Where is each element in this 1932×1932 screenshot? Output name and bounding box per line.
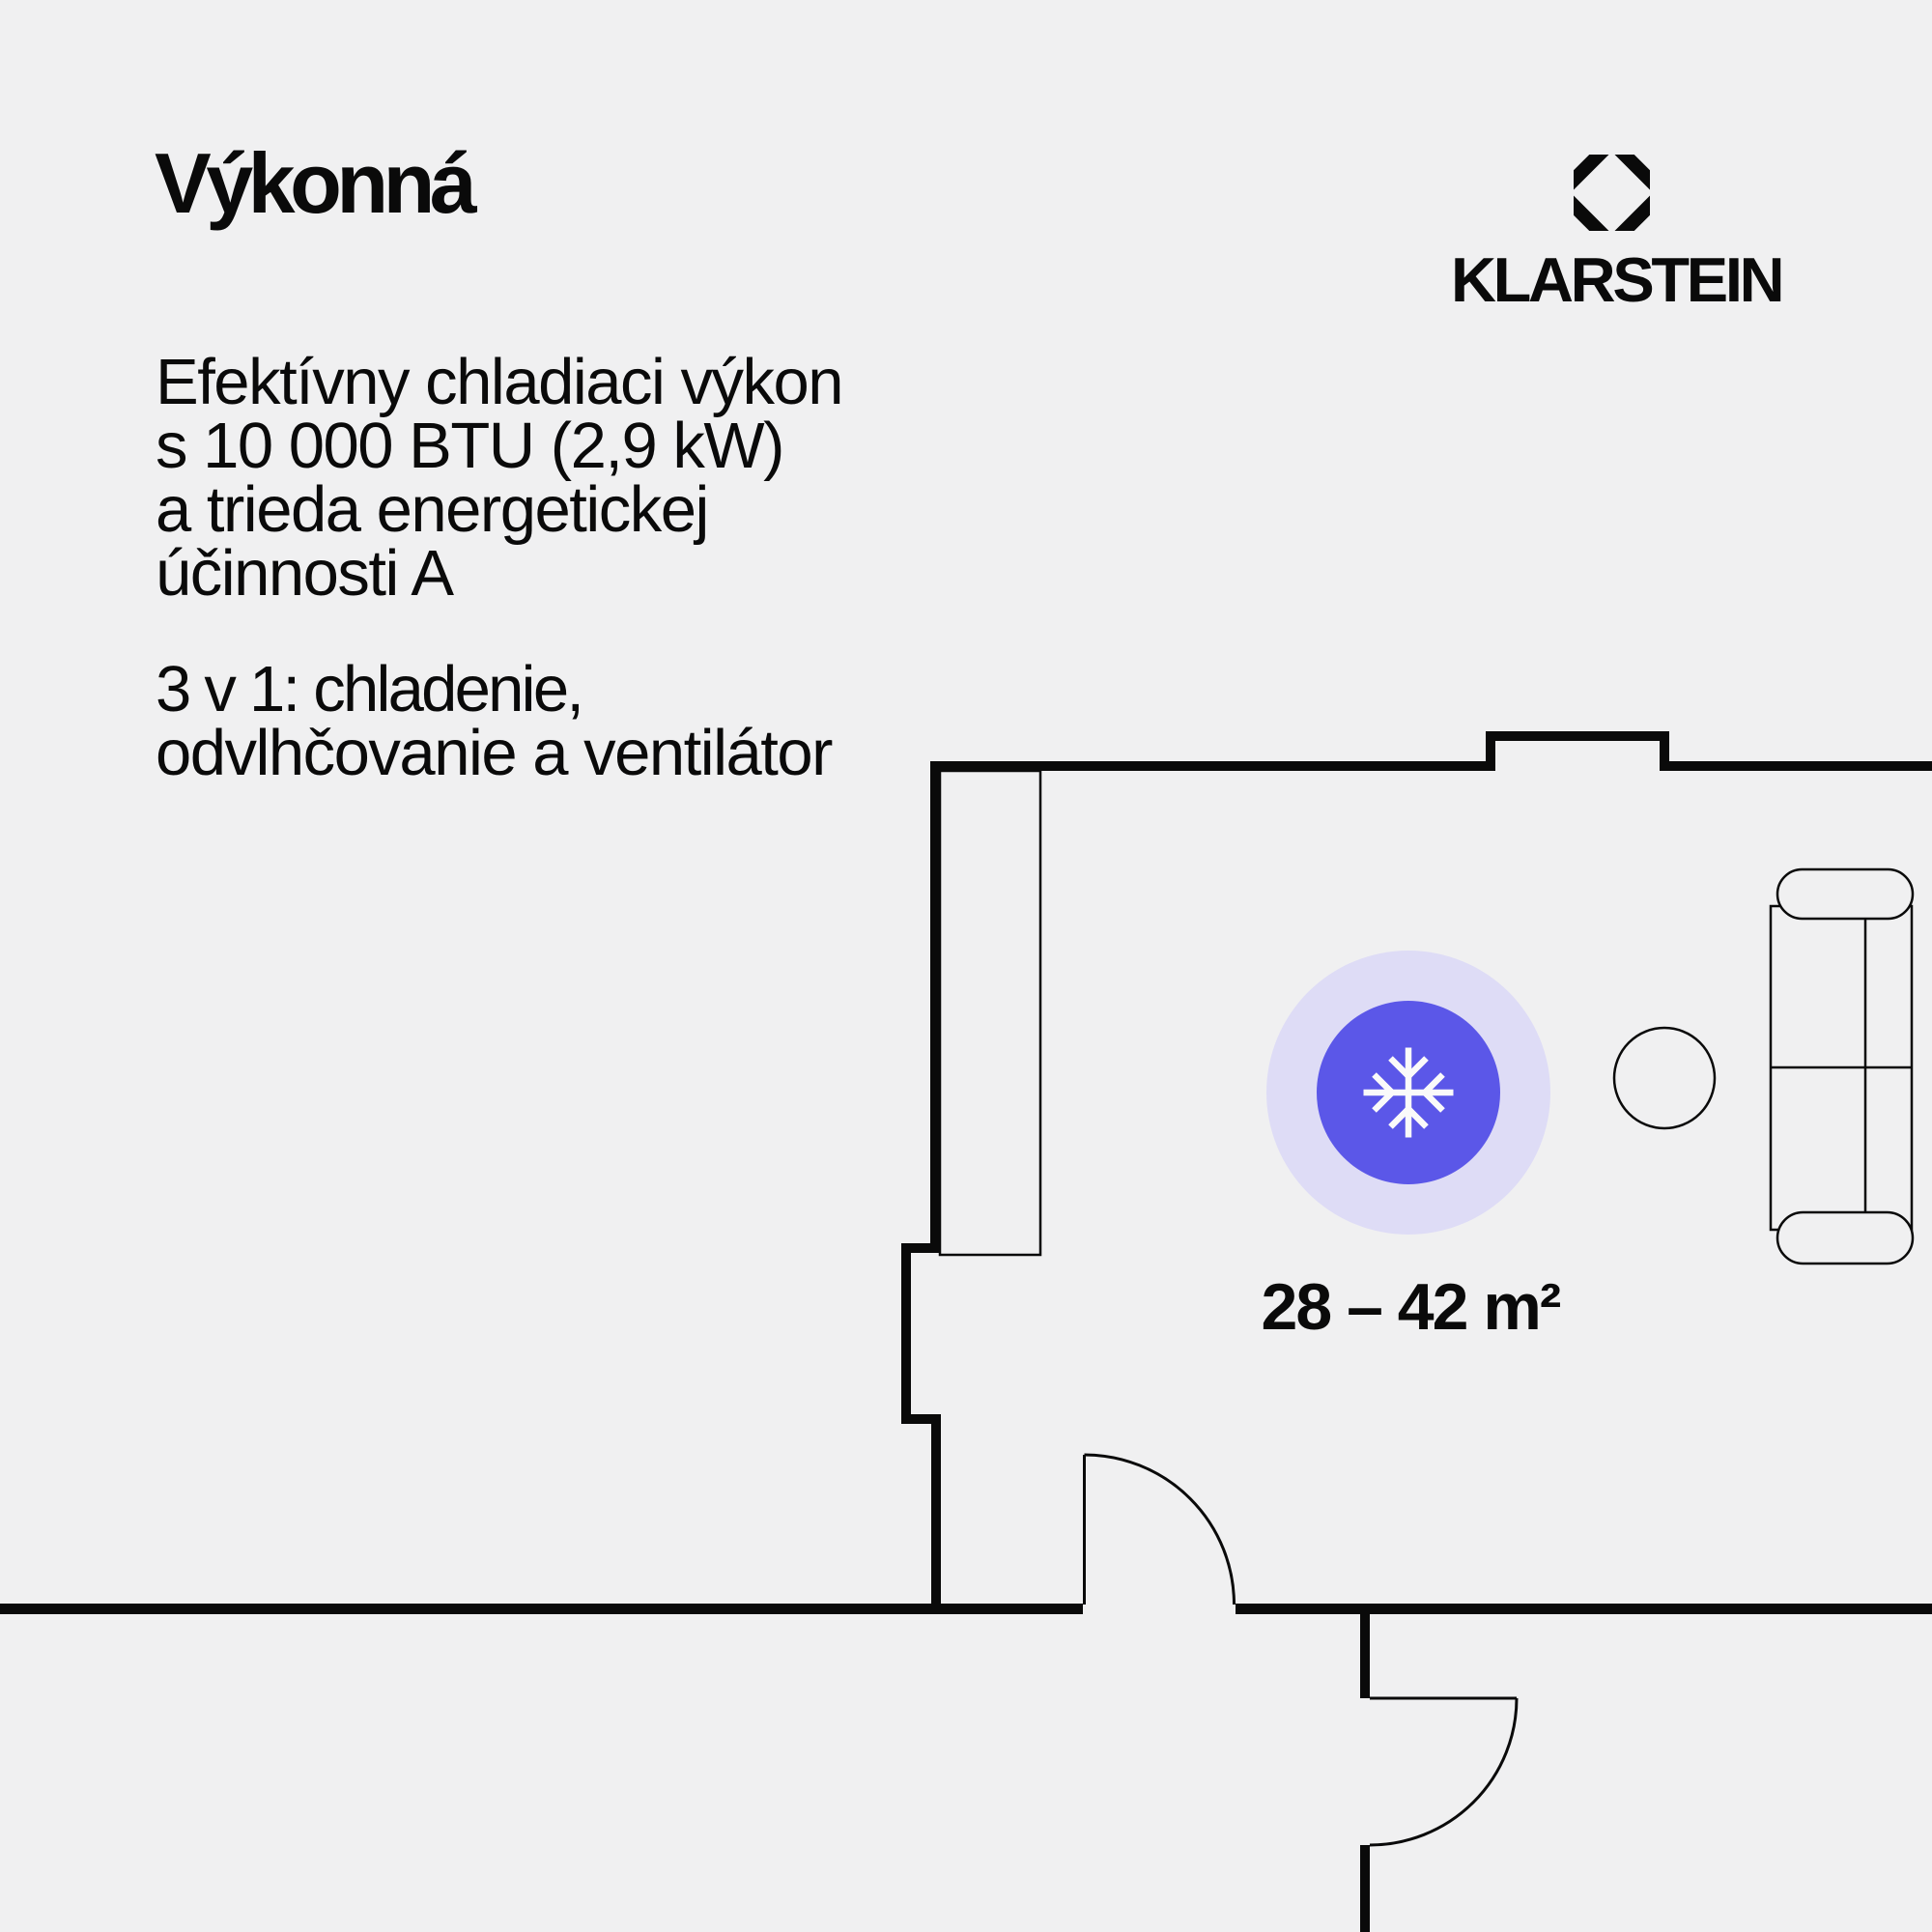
svg-text:KLARSTEIN: KLARSTEIN [1451,244,1781,315]
svg-text:a trieda energetickej: a trieda energetickej [156,473,708,546]
svg-text:odvlhčovanie a ventilátor: odvlhčovanie a ventilátor [156,717,833,789]
svg-text:Výkonná: Výkonná [155,135,478,231]
svg-text:účinnosti A: účinnosti A [156,537,454,610]
svg-text:Efektívny chladiaci výkon: Efektívny chladiaci výkon [156,346,842,418]
svg-text:28 – 42 m²: 28 – 42 m² [1262,1270,1561,1344]
svg-text:s 10 000 BTU (2,9 kW): s 10 000 BTU (2,9 kW) [156,410,783,482]
svg-text:3 v 1: chladenie,: 3 v 1: chladenie, [156,653,582,725]
